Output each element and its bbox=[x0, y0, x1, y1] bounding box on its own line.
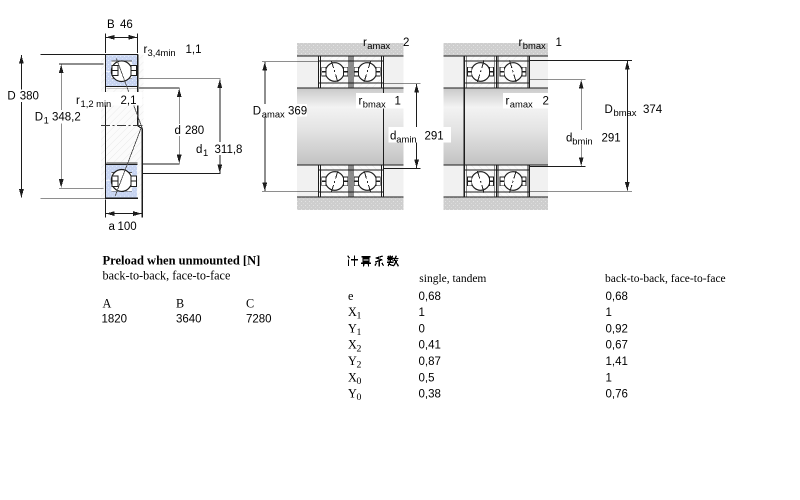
svg-text:1: 1 bbox=[606, 372, 612, 384]
svg-text:1,41: 1,41 bbox=[606, 356, 628, 368]
svg-text:r: r bbox=[76, 95, 80, 107]
svg-text:0,92: 0,92 bbox=[606, 323, 628, 335]
svg-text:291: 291 bbox=[602, 133, 621, 145]
svg-text:3,4min: 3,4min bbox=[148, 47, 176, 58]
svg-text:0: 0 bbox=[357, 392, 362, 403]
svg-text:d: d bbox=[196, 144, 202, 156]
svg-text:amin: amin bbox=[396, 134, 416, 145]
svg-text:D: D bbox=[605, 104, 613, 116]
svg-text:1,2 min: 1,2 min bbox=[81, 98, 112, 109]
svg-text:3640: 3640 bbox=[176, 314, 202, 326]
svg-text:380: 380 bbox=[20, 91, 39, 103]
svg-text:1: 1 bbox=[44, 114, 49, 125]
svg-text:B: B bbox=[176, 297, 184, 311]
svg-text:1: 1 bbox=[395, 95, 401, 107]
svg-text:bmax: bmax bbox=[614, 107, 637, 118]
svg-text:bmax: bmax bbox=[363, 98, 386, 109]
svg-text:1: 1 bbox=[203, 147, 208, 158]
svg-text:back-to-back, face-to-face: back-to-back, face-to-face bbox=[605, 273, 726, 285]
svg-text:0,68: 0,68 bbox=[606, 291, 628, 303]
svg-text:2: 2 bbox=[357, 343, 362, 354]
svg-text:0,76: 0,76 bbox=[606, 389, 628, 401]
svg-text:D: D bbox=[7, 91, 15, 103]
svg-text:2: 2 bbox=[543, 95, 549, 107]
svg-text:0: 0 bbox=[419, 323, 425, 335]
svg-text:0: 0 bbox=[357, 376, 362, 387]
svg-text:1: 1 bbox=[357, 327, 362, 338]
svg-text:2: 2 bbox=[357, 360, 362, 371]
svg-text:0,38: 0,38 bbox=[419, 389, 441, 401]
svg-text:A: A bbox=[103, 297, 112, 311]
svg-text:d: d bbox=[175, 125, 181, 137]
svg-text:0,41: 0,41 bbox=[419, 340, 441, 352]
svg-text:D: D bbox=[253, 105, 261, 117]
svg-text:Preload when unmounted [N]: Preload when unmounted [N] bbox=[103, 254, 261, 268]
svg-text:348,2: 348,2 bbox=[52, 111, 81, 123]
svg-text:1: 1 bbox=[606, 307, 612, 319]
svg-text:2: 2 bbox=[403, 37, 409, 49]
svg-text:280: 280 bbox=[185, 125, 204, 137]
svg-text:311,8: 311,8 bbox=[215, 144, 243, 156]
svg-text:1,1: 1,1 bbox=[186, 44, 202, 56]
svg-text:e: e bbox=[348, 289, 353, 303]
svg-text:single, tandem: single, tandem bbox=[419, 273, 486, 285]
svg-text:amax: amax bbox=[262, 108, 285, 119]
svg-text:1: 1 bbox=[357, 311, 362, 322]
svg-text:374: 374 bbox=[643, 104, 663, 116]
svg-text:1: 1 bbox=[556, 37, 562, 49]
svg-text:C: C bbox=[246, 297, 254, 311]
svg-text:a: a bbox=[109, 221, 116, 233]
svg-text:46: 46 bbox=[120, 19, 133, 31]
svg-text:amax: amax bbox=[510, 98, 533, 109]
svg-text:1: 1 bbox=[419, 307, 425, 319]
svg-text:291: 291 bbox=[425, 131, 444, 143]
svg-text:369: 369 bbox=[288, 105, 307, 117]
svg-text:100: 100 bbox=[118, 221, 137, 233]
svg-text:0,87: 0,87 bbox=[419, 356, 441, 368]
svg-text:B: B bbox=[107, 19, 115, 31]
svg-text:back-to-back, face-to-face: back-to-back, face-to-face bbox=[103, 269, 231, 283]
svg-text:1820: 1820 bbox=[102, 314, 128, 326]
svg-text:2,1: 2,1 bbox=[121, 95, 137, 107]
svg-text:0,68: 0,68 bbox=[419, 291, 441, 303]
svg-text:7280: 7280 bbox=[246, 314, 272, 326]
svg-text:amax: amax bbox=[367, 40, 390, 51]
svg-text:D: D bbox=[35, 111, 43, 123]
svg-text:0,5: 0,5 bbox=[419, 372, 435, 384]
svg-text:bmax: bmax bbox=[523, 40, 546, 51]
svg-text:0,67: 0,67 bbox=[606, 340, 628, 352]
svg-text:bmin: bmin bbox=[572, 136, 592, 147]
